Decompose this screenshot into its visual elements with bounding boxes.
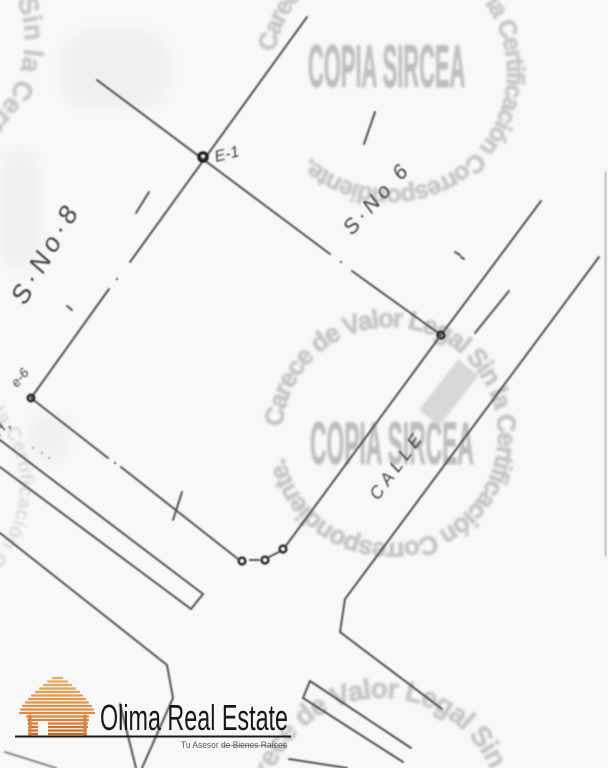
svg-text:COPIA SIRCEA: COPIA SIRCEA bbox=[308, 33, 465, 101]
svg-text:Tu Asesor de Bienes Raíces: Tu Asesor de Bienes Raíces bbox=[181, 740, 287, 751]
svg-text:Olima Real Estate: Olima Real Estate bbox=[100, 697, 288, 738]
